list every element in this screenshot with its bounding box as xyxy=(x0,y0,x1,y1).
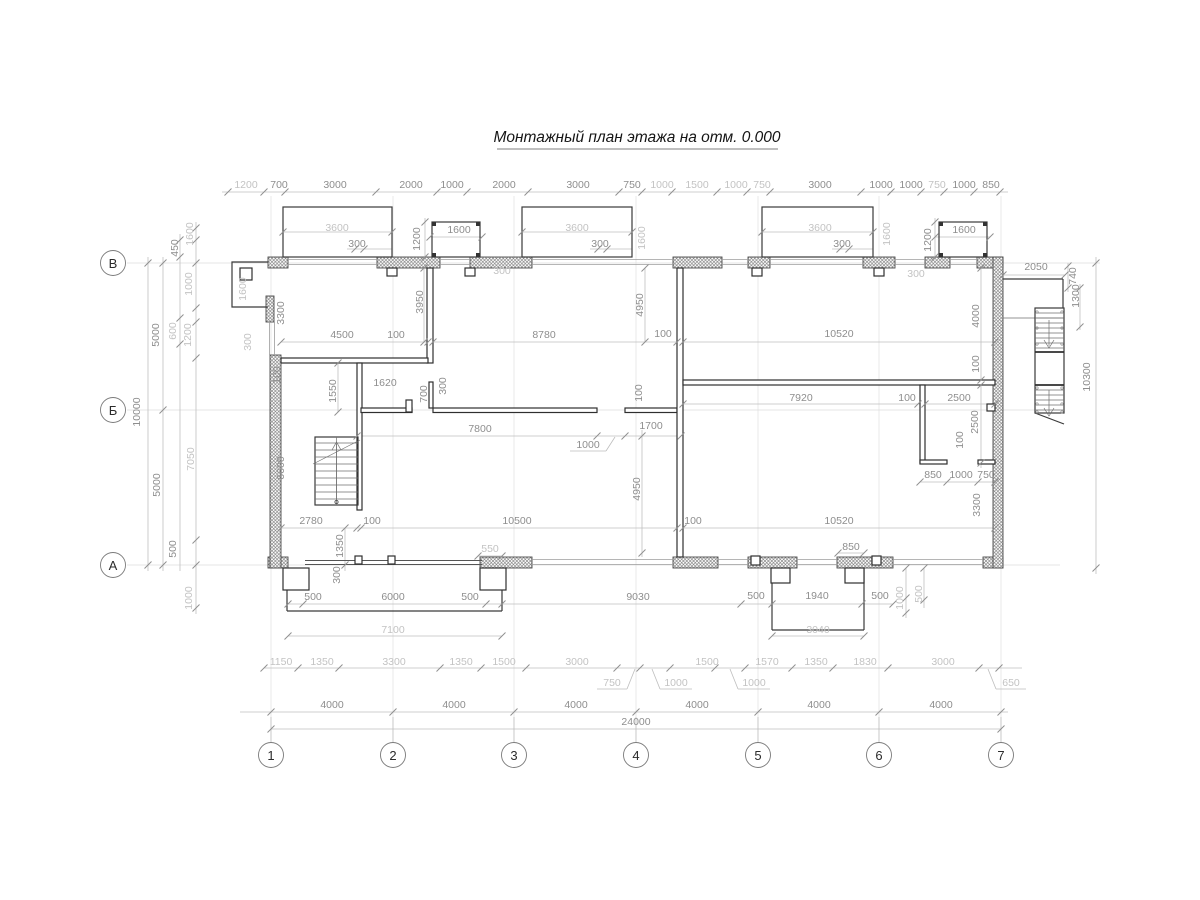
partition-walls xyxy=(240,268,995,565)
axis-col-label: 5 xyxy=(754,748,761,763)
dim-label: 100 xyxy=(684,515,702,527)
dim-label: 1350 xyxy=(449,656,473,668)
axis-col-label: 3 xyxy=(510,748,517,763)
dim-label: 100 xyxy=(387,329,405,341)
dim-label: 5000 xyxy=(150,323,162,347)
dim-label: 300 xyxy=(348,238,366,250)
dim-label: 740 xyxy=(1067,267,1079,285)
dim-label: 750 xyxy=(603,677,621,689)
dim-label: 1000 xyxy=(650,179,674,191)
dim-label: 3300 xyxy=(971,493,983,517)
dim-label: 10520 xyxy=(824,515,853,527)
dim-label: 6000 xyxy=(381,591,405,603)
dim-label: 1000 xyxy=(894,586,906,610)
dim-label: 300 xyxy=(493,265,511,277)
dim-label: 1570 xyxy=(755,656,779,668)
dim-label: 1550 xyxy=(327,379,339,403)
axis-col-label: 4 xyxy=(632,748,639,763)
dim-label: 300 xyxy=(242,333,254,351)
dim-label: 850 xyxy=(982,179,1000,191)
title-block: Монтажный план этажа на отм. 0.000 xyxy=(493,129,780,149)
floor-plan-drawing: В Б А 1 2 3 4 5 6 7 Монтажный план этажа… xyxy=(0,0,1200,900)
dim-label: 4500 xyxy=(330,329,354,341)
dim-label: 500 xyxy=(304,591,322,603)
dim-label: 3300 xyxy=(382,656,406,668)
dim-label: 750 xyxy=(623,179,641,191)
dim-label: 300 xyxy=(591,238,609,250)
dim-label: 3000 xyxy=(566,179,590,191)
dim-label: 1000 xyxy=(440,179,464,191)
dim-label: 2000 xyxy=(399,179,423,191)
dim-label: 3000 xyxy=(808,179,832,191)
dim-label: 4000 xyxy=(807,699,831,711)
dim-label: 4000 xyxy=(970,304,982,328)
dim-label: 1500 xyxy=(695,656,719,668)
dim-label: 1000 xyxy=(952,179,976,191)
dim-label: 1000 xyxy=(724,179,748,191)
dim-label: 1300 xyxy=(1070,284,1082,308)
external-stair xyxy=(1003,279,1064,424)
dim-label: 500 xyxy=(167,540,179,558)
dim-label: 500 xyxy=(871,590,889,602)
dim-label: 6600 xyxy=(275,456,287,480)
dim-label: 100 xyxy=(898,392,916,404)
dim-label: 550 xyxy=(481,543,499,555)
axis-col-label: 7 xyxy=(997,748,1004,763)
dim-label: 10500 xyxy=(502,515,531,527)
dim-label: 7100 xyxy=(381,624,405,636)
dim-label: 4000 xyxy=(685,699,709,711)
dim-label: 1000 xyxy=(183,586,195,610)
dim-label: 1000 xyxy=(869,179,893,191)
dim-label: 300 xyxy=(437,377,449,395)
dim-label: 100 xyxy=(954,431,966,449)
dim-label: 5000 xyxy=(151,473,163,497)
dim-label: 4000 xyxy=(564,699,588,711)
dim-label: 3300 xyxy=(275,301,287,325)
dim-label: 850 xyxy=(842,541,860,553)
dim-label: 4000 xyxy=(442,699,466,711)
axis-row-label: В xyxy=(109,256,118,271)
dim-label: 1600 xyxy=(952,224,976,236)
dim-label: 850 xyxy=(924,469,942,481)
dim-label: 3600 xyxy=(325,222,349,234)
dim-label: 750 xyxy=(753,179,771,191)
dim-label: 1350 xyxy=(334,534,346,558)
dimension-ticks xyxy=(145,189,1100,733)
dim-label: 1000 xyxy=(949,469,973,481)
dim-label: 2050 xyxy=(1024,261,1048,273)
dim-label: 3950 xyxy=(414,290,426,314)
internal-stair xyxy=(313,437,360,505)
dim-label: 1000 xyxy=(899,179,923,191)
dim-label: 3000 xyxy=(931,656,955,668)
dim-label: 1600 xyxy=(881,222,893,246)
dim-label: 2500 xyxy=(969,410,981,434)
dim-label: 1350 xyxy=(804,656,828,668)
dim-label: 3000 xyxy=(323,179,347,191)
dim-label: 1940 xyxy=(805,590,829,602)
dim-label: 1200 xyxy=(922,228,934,252)
axis-bubbles: В Б А 1 2 3 4 5 6 7 xyxy=(101,251,1014,768)
dim-label: 2000 xyxy=(492,179,516,191)
dim-label: 1600 xyxy=(636,226,648,250)
dim-label: 4950 xyxy=(631,477,643,501)
dim-label: 100 xyxy=(654,328,672,340)
dim-label: 3040 xyxy=(806,624,830,636)
dim-label: 300 xyxy=(907,268,925,280)
dim-label: 1000 xyxy=(576,439,600,451)
dim-label: 1700 xyxy=(639,420,663,432)
dim-label: 100 xyxy=(633,384,645,402)
dim-label: 9030 xyxy=(626,591,650,603)
dim-label: 300 xyxy=(833,238,851,250)
dim-label: 3600 xyxy=(808,222,832,234)
dim-label: 1350 xyxy=(310,656,334,668)
dim-label: 100 xyxy=(363,515,381,527)
dim-label: 7920 xyxy=(789,392,813,404)
dim-label: 750 xyxy=(977,469,995,481)
dim-label: 4000 xyxy=(320,699,344,711)
axis-col-label: 1 xyxy=(267,748,274,763)
dim-label: 10520 xyxy=(824,328,853,340)
dim-label: 100 xyxy=(271,366,283,384)
dim-label: 7800 xyxy=(468,423,492,435)
dim-label: 1000 xyxy=(742,677,766,689)
dim-label: 8780 xyxy=(532,329,556,341)
dim-label: 1500 xyxy=(685,179,709,191)
dim-label: 300 xyxy=(331,566,343,584)
drawing-sheet: В Б А 1 2 3 4 5 6 7 Монтажный план этажа… xyxy=(0,0,1200,900)
dim-label: 1500 xyxy=(492,656,516,668)
dim-label: 3000 xyxy=(565,656,589,668)
dim-label: 1200 xyxy=(411,227,423,251)
dim-label: 750 xyxy=(928,179,946,191)
dim-label: 1150 xyxy=(270,656,293,668)
dim-label: 500 xyxy=(461,591,479,603)
dim-label: 1830 xyxy=(853,656,877,668)
drawing-title: Монтажный план этажа на отм. 0.000 xyxy=(493,129,780,146)
dim-label: 10300 xyxy=(1081,362,1093,391)
dim-label: 450 xyxy=(169,239,181,257)
dim-label: 1620 xyxy=(373,377,397,389)
dim-label: 500 xyxy=(747,590,765,602)
dim-label: 1600 xyxy=(237,277,249,301)
dim-label: 1200 xyxy=(182,323,194,347)
dim-label: 1600 xyxy=(447,224,471,236)
dim-label: 700 xyxy=(418,385,430,403)
dim-label: 700 xyxy=(270,179,288,191)
dim-label: 2780 xyxy=(299,515,323,527)
dim-label: 1000 xyxy=(183,272,195,296)
axis-col-label: 2 xyxy=(389,748,396,763)
dim-label: 500 xyxy=(913,585,925,603)
dim-label: 1000 xyxy=(664,677,688,689)
dim-label: 1200 xyxy=(234,179,258,191)
dim-label: 4000 xyxy=(929,699,953,711)
dim-label: 4950 xyxy=(634,293,646,317)
dim-label: 10000 xyxy=(131,397,143,426)
dim-label: 7050 xyxy=(185,447,197,471)
dim-label: 100 xyxy=(970,355,982,373)
dim-label: 650 xyxy=(1002,677,1020,689)
dim-label: 600 xyxy=(167,322,179,340)
dim-label: 24000 xyxy=(621,716,650,728)
axis-row-label: Б xyxy=(109,403,118,418)
axis-row-label: А xyxy=(109,558,118,573)
dim-label: 3600 xyxy=(565,222,589,234)
dim-label: 2500 xyxy=(947,392,971,404)
dim-label: 1600 xyxy=(184,222,196,246)
axis-col-label: 6 xyxy=(875,748,882,763)
